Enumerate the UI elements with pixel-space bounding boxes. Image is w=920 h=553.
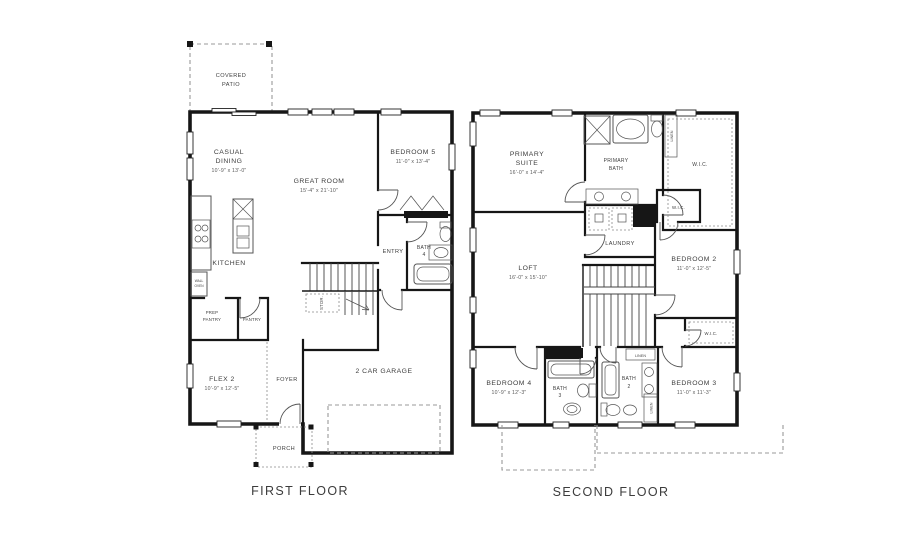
first-floor-plan: STOR. [187, 41, 455, 498]
bedroom2-dims: 11'-0" x 12'-5" [677, 266, 712, 272]
bedroom5-closet-bifold [400, 196, 444, 210]
svg-text:OVEN: OVEN [194, 284, 204, 288]
svg-text:DINING: DINING [216, 158, 243, 165]
washer-icon [589, 208, 609, 230]
great-room-label: GREAT ROOM [294, 178, 345, 185]
casual-dining-dims: 10'-9" x 13'-0" [212, 168, 247, 174]
kitchen-label: KITCHEN [212, 260, 245, 267]
svg-text:2: 2 [627, 384, 630, 390]
bedroom5-label: BEDROOM 5 [390, 149, 435, 156]
toilet-icon [589, 384, 596, 397]
bedroom2-label: BEDROOM 2 [671, 256, 716, 263]
refrigerator-icon [233, 199, 253, 219]
storage-label: STOR. [319, 296, 324, 310]
laundry-fixtures [589, 208, 632, 230]
primary-suite-label: PRIMARY [510, 151, 544, 158]
bedroom5-dims: 11'-0" x 13'-4" [396, 159, 431, 165]
svg-text:SUITE: SUITE [516, 160, 539, 167]
hall-wic-label: W.I.C. [672, 205, 685, 210]
laundry-label: LAUNDRY [605, 241, 634, 247]
second-floor-stairs [583, 265, 655, 347]
foyer-label: FOYER [276, 377, 297, 383]
garage-door-outline [328, 405, 440, 453]
second-floor-caption: SECOND FLOOR [553, 485, 670, 499]
loft-dims: 16'-0" x 15'-10" [509, 275, 547, 281]
pantry-label: PANTRY [243, 317, 261, 322]
garage-label: 2 CAR GARAGE [356, 368, 413, 375]
great-room-dims: 15'-4" x 21'-10" [300, 188, 338, 194]
prep-pantry-label: PREP [206, 310, 219, 315]
plumbing-wall [404, 211, 448, 218]
toilet-icon [440, 222, 451, 228]
svg-text:3: 3 [558, 393, 561, 399]
shower-tub-icon [602, 362, 619, 398]
svg-text:PANTRY: PANTRY [203, 317, 221, 322]
bath4-fixtures [414, 222, 452, 284]
floor-plan-canvas: STOR. [0, 0, 920, 553]
casual-dining-label: CASUAL [214, 149, 244, 156]
double-vanity [642, 363, 657, 397]
flex2-dims: 10'-9" x 12'-5" [205, 386, 240, 392]
second-floor-plan: PRIMARY SUITE 16'-0" x 14'-4" PRIMARY BA… [470, 110, 783, 499]
dryer-icon [612, 208, 632, 230]
floor-plan-page: STOR. [0, 0, 920, 553]
patio-sliding-door [212, 109, 256, 116]
first-floor-stairs: STOR. [302, 263, 378, 315]
first-floor-caption: FIRST FLOOR [251, 484, 349, 498]
bath4-label: BATH [417, 245, 431, 251]
svg-text:PATIO: PATIO [222, 82, 240, 88]
porch-label: PORCH [273, 446, 295, 452]
svg-text:4: 4 [422, 252, 425, 258]
linen-label: LINEN [670, 130, 674, 141]
bath2-linen-top-label: LINEN [635, 354, 646, 358]
bedroom3-wic-label: W.I.C. [705, 331, 718, 336]
primary-wic-label: W.I.C. [692, 162, 707, 168]
bath2-linen-bottom-label: LINEN [650, 402, 654, 413]
tub-icon [548, 361, 594, 378]
bedroom3-dims: 11'-0" x 11'-3" [677, 390, 711, 396]
wall-oven-label: WALL [195, 279, 204, 283]
sink-icon [624, 405, 637, 415]
toilet-icon [651, 115, 663, 121]
primary-suite-dims: 16'-0" x 14'-4" [510, 170, 545, 176]
bedroom4-dims: 10'-9" x 12'-3" [492, 390, 527, 396]
bath3-label: BATH [553, 386, 567, 392]
bath-chase [546, 348, 583, 358]
roof-outline-dashed [502, 425, 783, 470]
primary-bath-label: PRIMARY [604, 158, 629, 164]
laundry-chase [633, 205, 655, 227]
loft-label: LOFT [518, 265, 537, 272]
svg-text:BATH: BATH [609, 166, 623, 172]
bedroom3-label: BEDROOM 3 [671, 380, 716, 387]
flex2-label: FLEX 2 [209, 376, 235, 383]
bedroom4-label: BEDROOM 4 [486, 380, 531, 387]
sink-icon [564, 403, 581, 415]
entry-label: ENTRY [383, 249, 404, 255]
covered-patio-label: COVERED [216, 73, 246, 79]
bath2-label: BATH [622, 376, 636, 382]
range-icon [237, 226, 249, 236]
